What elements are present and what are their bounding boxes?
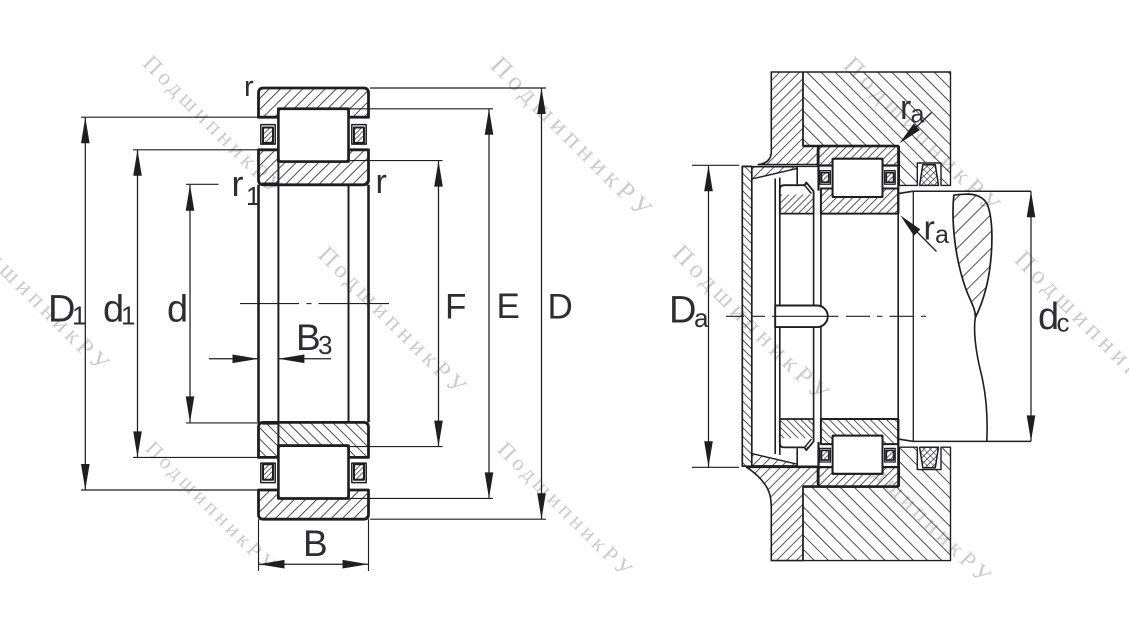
svg-text:a: a bbox=[935, 221, 949, 249]
svg-text:r: r bbox=[376, 163, 387, 201]
svg-text:c: c bbox=[1057, 308, 1070, 338]
svg-text:D: D bbox=[548, 288, 573, 327]
svg-text:1: 1 bbox=[121, 301, 135, 331]
svg-text:1: 1 bbox=[72, 301, 86, 331]
svg-text:r: r bbox=[244, 71, 254, 103]
svg-text:r: r bbox=[924, 210, 935, 248]
svg-text:B: B bbox=[303, 523, 328, 564]
svg-text:3: 3 bbox=[318, 330, 332, 360]
svg-text:1: 1 bbox=[246, 181, 260, 211]
svg-text:F: F bbox=[445, 288, 466, 327]
svg-text:a: a bbox=[911, 101, 925, 129]
svg-text:a: a bbox=[694, 303, 709, 333]
svg-text:E: E bbox=[497, 287, 520, 326]
svg-text:d: d bbox=[167, 289, 188, 331]
svg-text:D: D bbox=[669, 290, 696, 332]
svg-text:B: B bbox=[296, 317, 321, 358]
svg-text:r: r bbox=[232, 163, 244, 204]
